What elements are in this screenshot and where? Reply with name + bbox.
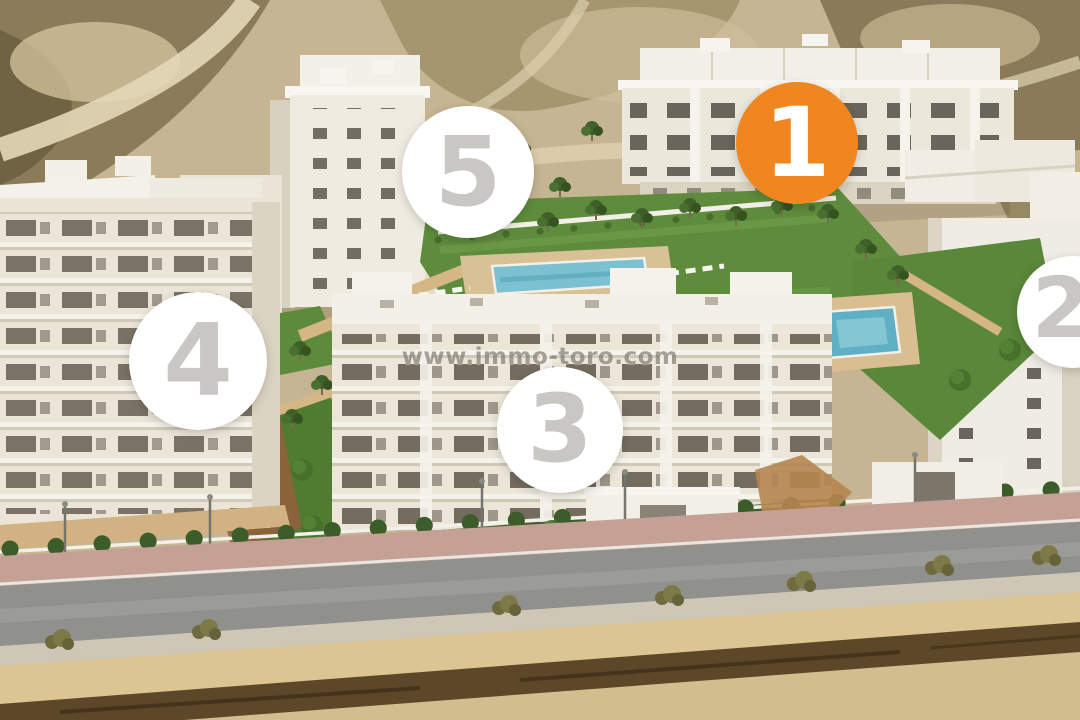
phase-marker-5[interactable]: 5 [402, 106, 534, 238]
phase-marker-3[interactable]: 3 [497, 367, 623, 493]
phase-marker-3-label: 3 [527, 383, 592, 477]
phase-marker-4-label: 4 [163, 311, 233, 411]
phase-marker-1-label: 1 [764, 95, 831, 191]
phase-marker-1[interactable]: 1 [736, 82, 858, 204]
phase-marker-5-label: 5 [435, 124, 502, 220]
phase-marker-2-label: 2 [1032, 266, 1080, 350]
aerial-development-render: www.immo-toro.com 1 2 3 4 5 [0, 0, 1080, 720]
phase-marker-4[interactable]: 4 [129, 292, 267, 430]
